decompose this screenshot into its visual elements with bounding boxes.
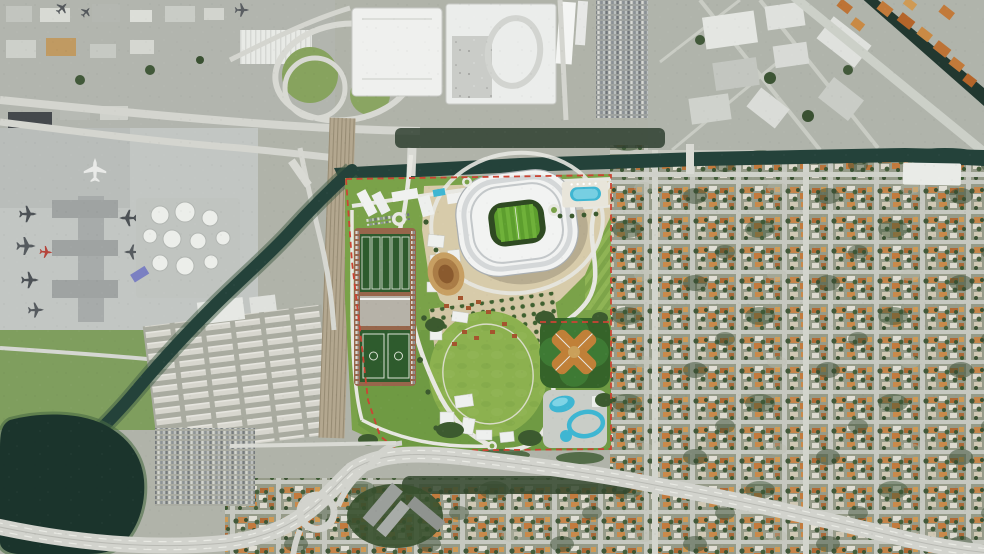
satellite-map — [0, 0, 984, 554]
aerial-scene — [0, 0, 984, 554]
grain-overlay — [0, 0, 984, 554]
